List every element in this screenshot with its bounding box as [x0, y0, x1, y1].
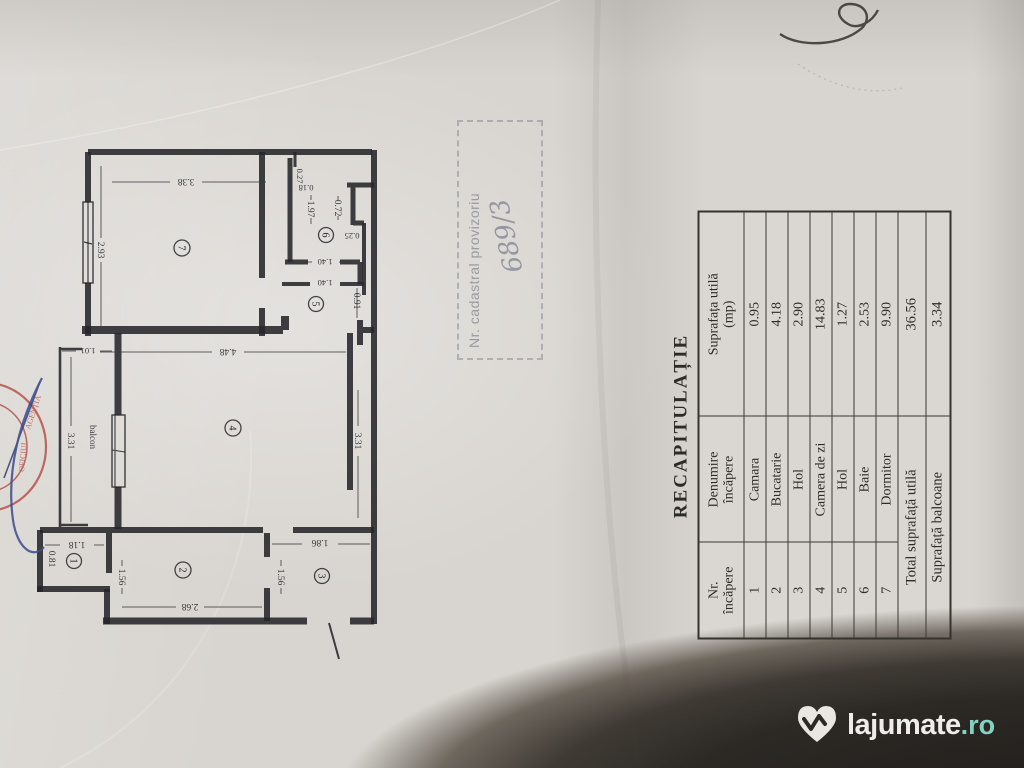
- cell-nr: 2: [766, 543, 788, 639]
- dim-0.81: 0.81: [46, 551, 56, 568]
- balcony-label: Suprafață balcoane: [926, 417, 951, 639]
- recap-header-row: Nr.încăpere Denumireîncăpere Suprafața u…: [699, 212, 745, 639]
- dim-2.93: 2.93: [95, 242, 105, 259]
- total-row: Total suprafață utilă 36.56: [898, 212, 926, 639]
- dim-0.72: 0.72: [332, 200, 342, 217]
- table-row: 5 Hol 1.27: [832, 212, 854, 639]
- cell-nr: 1: [744, 543, 766, 639]
- cell-nr: 3: [788, 543, 810, 639]
- table-row: 3 Hol 2.90: [788, 212, 810, 639]
- header-suprafata: Suprafața utilă(mp): [699, 212, 745, 417]
- plan-walls: [37, 150, 374, 659]
- dim-1.86: 1.86: [311, 537, 328, 547]
- room-4-marker: 4: [225, 420, 241, 436]
- cell-name: Camera de zi: [810, 417, 832, 543]
- cell-nr: 6: [854, 543, 876, 639]
- room-1-marker: 1: [67, 554, 82, 569]
- dim-3.31-left: 3.31: [65, 433, 75, 450]
- svg-text:4: 4: [227, 426, 238, 431]
- dim-0.18: 0.18: [299, 183, 314, 193]
- cell-name: Camara: [744, 417, 766, 543]
- table-row: 6 Baie 2.53: [854, 212, 876, 639]
- cell-name: Baie: [854, 417, 876, 543]
- pen-scribble: [780, 4, 902, 91]
- svg-text:1: 1: [68, 559, 79, 564]
- dim-0.91: 0.91: [351, 293, 361, 310]
- recapitulation-block: RECAPITULAȚIE Nr.încăpere Denumireîncăpe…: [668, 213, 972, 640]
- cell-name: Bucatarie: [766, 417, 788, 543]
- total-value: 36.56: [898, 212, 926, 417]
- room-5-marker: 5: [309, 297, 324, 312]
- balcony-row: Suprafață balcoane 3.34: [926, 212, 951, 639]
- table-row: 1 Camara 0.95: [744, 212, 766, 639]
- dim-1.01: 1.01: [81, 346, 96, 356]
- cell-name: Dormitor: [876, 417, 898, 543]
- room-6-marker: 6: [319, 228, 334, 243]
- svg-text:2: 2: [177, 568, 188, 573]
- cell-name: Hol: [832, 417, 854, 543]
- dim-1.18: 1.18: [68, 539, 85, 549]
- cell-area: 4.18: [766, 212, 788, 417]
- dim-2.68: 2.68: [181, 601, 198, 611]
- dim-0.27: 0.27: [295, 169, 305, 184]
- dim-1.56-k: 1.56: [116, 569, 126, 586]
- svg-text:5: 5: [310, 302, 321, 307]
- balcony-value: 3.34: [926, 212, 951, 417]
- dim-1.97: 1.97: [305, 201, 315, 218]
- cell-area: 0.95: [744, 212, 766, 417]
- table-row: 7 Dormitor 9.90: [876, 212, 898, 639]
- header-denumire: Denumireîncăpere: [699, 417, 745, 543]
- cell-nr: 4: [810, 543, 832, 639]
- watermark-tld: .ro: [961, 710, 996, 741]
- dim-3.31-right: 3.31: [352, 433, 362, 450]
- dim-1.56-h: 1.56: [275, 569, 285, 586]
- svg-text:3: 3: [316, 574, 327, 579]
- svg-text:6: 6: [320, 233, 331, 238]
- dim-4.48: 4.48: [219, 346, 236, 356]
- cell-area: 2.90: [788, 212, 810, 417]
- recap-table: Nr.încăpere Denumireîncăpere Suprafața u…: [698, 211, 952, 640]
- room-2-marker: 2: [175, 562, 191, 578]
- svg-text:7: 7: [176, 246, 187, 251]
- table-row: 4 Camera de zi 14.83: [810, 212, 832, 639]
- room-3-marker: 3: [315, 569, 330, 584]
- cell-nr: 7: [876, 543, 898, 639]
- header-nr: Nr.încăpere: [699, 543, 745, 639]
- balcony-label: balcon: [88, 425, 98, 449]
- dim-0.25: 0.25: [345, 231, 360, 241]
- dim-1.40b: 1.40: [318, 278, 333, 288]
- cadastral-number-stamp: Nr. cadastral provizoriu 689/3: [457, 120, 543, 360]
- cell-area: 1.27: [832, 212, 854, 417]
- cell-name: Hol: [788, 417, 810, 543]
- red-round-stamp: AGENȚIA OFICIUL: [0, 383, 46, 511]
- cell-area: 14.83: [810, 212, 832, 417]
- photographed-floorplan-document: { "recap_table": { "title": "RECAPITULAȚ…: [0, 0, 1024, 768]
- lajumate-heart-icon: [794, 704, 840, 746]
- lajumate-watermark: lajumate .ro: [794, 704, 995, 746]
- watermark-brand: lajumate: [847, 709, 961, 742]
- paper-creases: [0, 0, 640, 768]
- total-label: Total suprafață utilă: [898, 417, 926, 639]
- recap-title: RECAPITULAȚIE: [668, 213, 698, 640]
- cell-area: 2.53: [854, 212, 876, 417]
- red-stamp-word2: OFICIUL: [17, 440, 29, 472]
- dim-1.40a: 1.40: [318, 257, 333, 267]
- cell-area: 9.90: [876, 212, 898, 417]
- table-row: 2 Bucatarie 4.18: [766, 212, 788, 639]
- cell-nr: 5: [832, 543, 854, 639]
- dim-3.38: 3.38: [177, 176, 194, 186]
- room-7-marker: 7: [174, 240, 190, 256]
